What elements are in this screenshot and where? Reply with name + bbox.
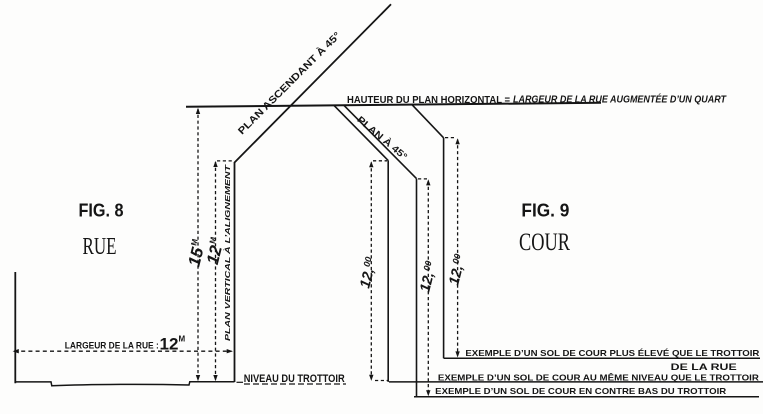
svg-text:12: 12 — [160, 335, 179, 354]
svg-text:HAUTEUR DU PLAN HORIZONTAL =: HAUTEUR DU PLAN HORIZONTAL = — [347, 94, 510, 106]
svg-text:NIVEAU DU TROTTOIR: NIVEAU DU TROTTOIR — [244, 373, 345, 385]
svg-text:PLAN VERTICAL À L’ALIGNEMENT: PLAN VERTICAL À L’ALIGNEMENT — [223, 163, 232, 341]
svg-text:EXEMPLE D’UN SOL DE COUR AU MÊ: EXEMPLE D’UN SOL DE COUR AU MÊME NIVEAU … — [438, 372, 759, 383]
svg-text:FIG. 8: FIG. 8 — [79, 201, 124, 221]
svg-text:LARGEUR DE LA RUE :: LARGEUR DE LA RUE : — [65, 341, 159, 352]
svg-text:COUR: COUR — [519, 227, 570, 256]
svg-text:FIG. 9: FIG. 9 — [521, 201, 569, 221]
svg-text:DE LA RUE: DE LA RUE — [671, 362, 737, 372]
svg-text:RUE: RUE — [83, 233, 117, 260]
svg-text:LARGEUR DE LA RUE AUGMENTÉE D’: LARGEUR DE LA RUE AUGMENTÉE D’UN QUART — [513, 93, 727, 106]
svg-text:EXEMPLE D’UN SOL DE COUR EN CO: EXEMPLE D’UN SOL DE COUR EN CONTRE BAS D… — [435, 386, 726, 396]
svg-text:EXEMPLE D’UN SOL DE COUR PLUS: EXEMPLE D’UN SOL DE COUR PLUS ÉLEVÉ QUE … — [465, 348, 759, 358]
svg-text:M: M — [179, 335, 186, 344]
